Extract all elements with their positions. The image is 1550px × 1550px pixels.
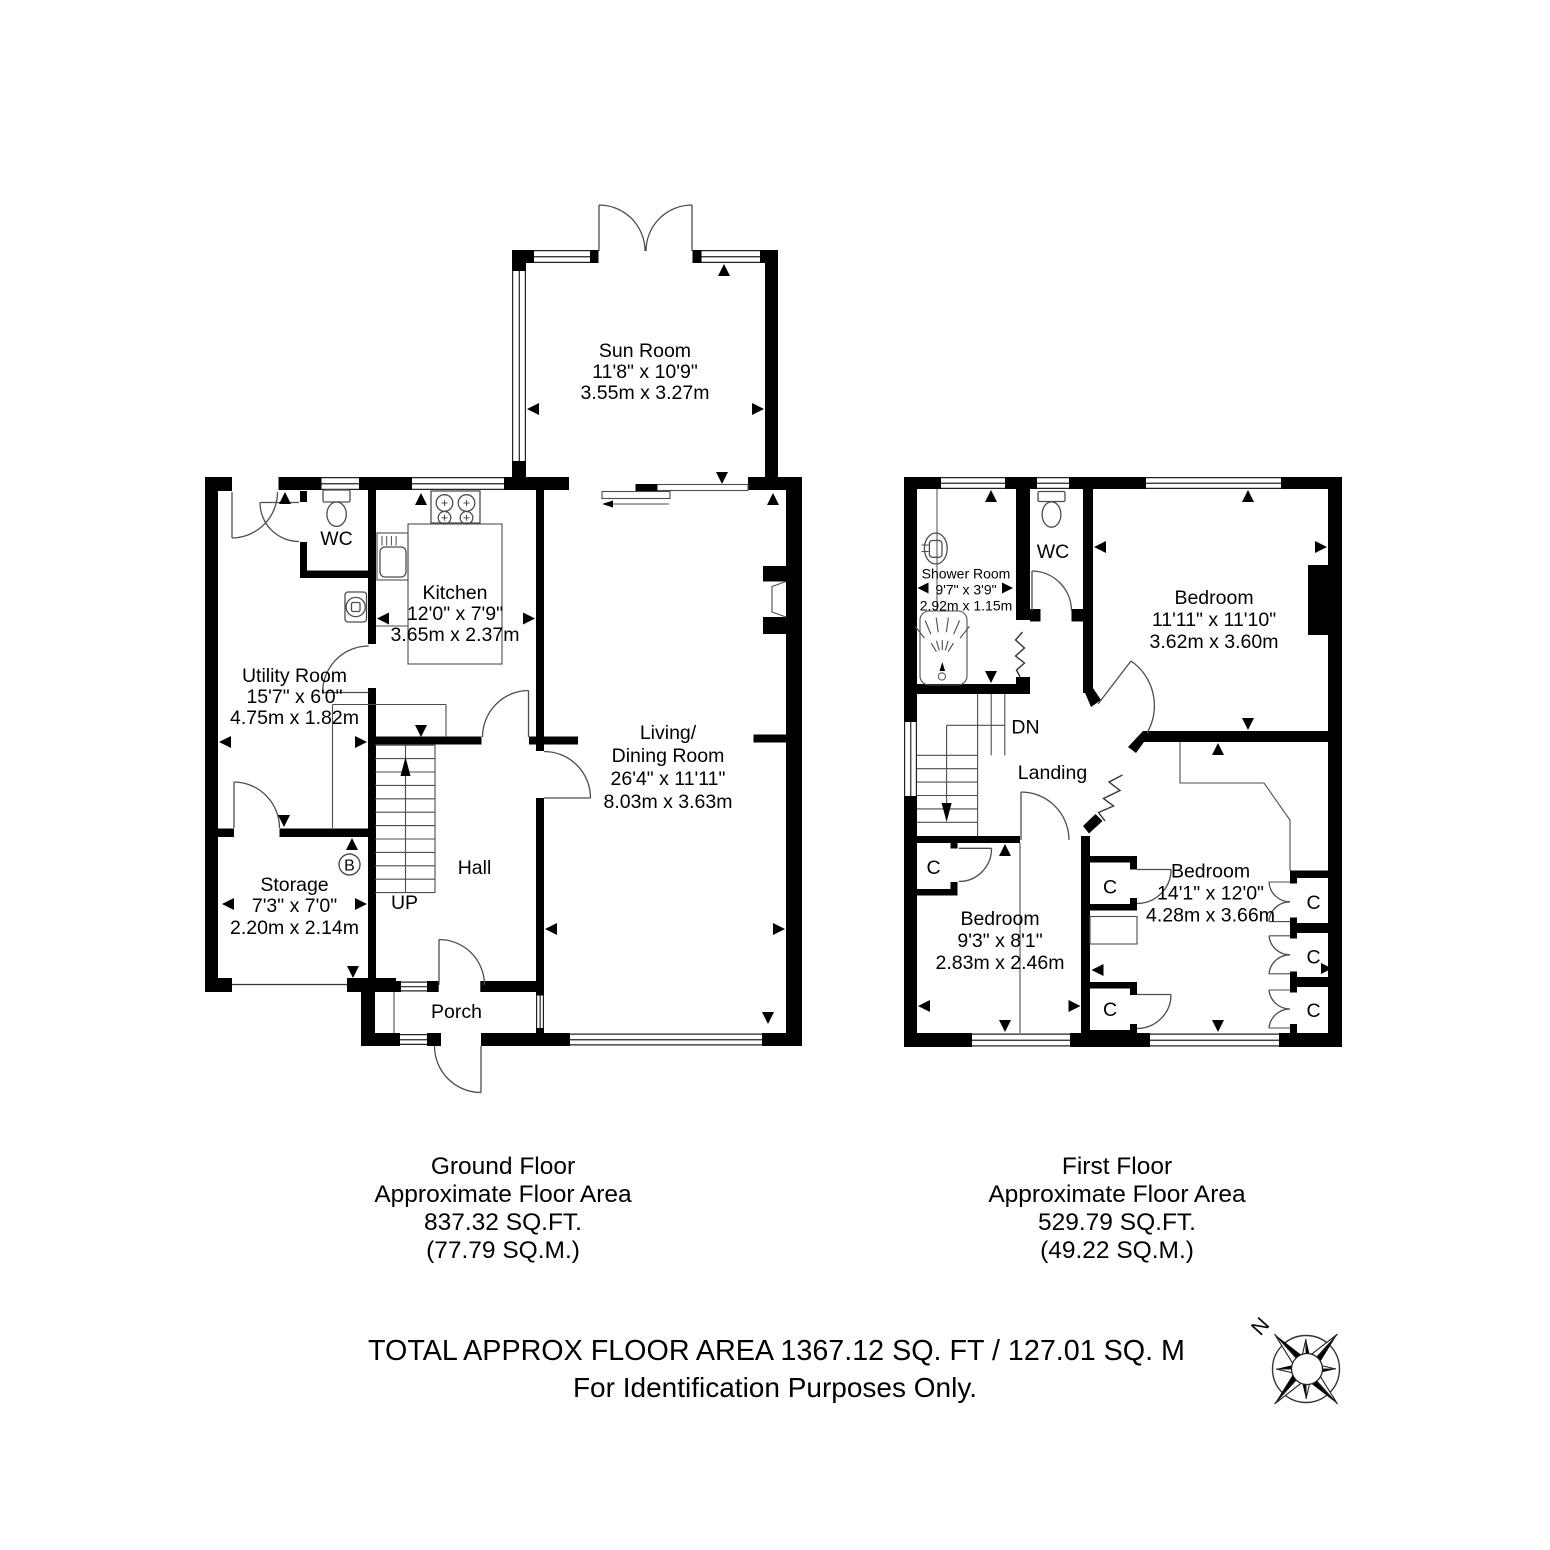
svg-text:TOTAL APPROX FLOOR AREA 1367.1: TOTAL APPROX FLOOR AREA 1367.12 SQ. FT /…: [368, 1335, 1185, 1367]
svg-text:Landing: Landing: [1018, 762, 1087, 784]
svg-text:C: C: [1103, 877, 1117, 899]
svg-text:2.83m x 2.46m: 2.83m x 2.46m: [936, 952, 1065, 974]
svg-text:C: C: [926, 857, 940, 879]
svg-text:Approximate Floor Area: Approximate Floor Area: [374, 1181, 632, 1208]
svg-text:Bedroom: Bedroom: [1174, 587, 1253, 609]
svg-text:2.92m x 1.15m: 2.92m x 1.15m: [920, 598, 1013, 614]
svg-text:4.75m x 1.82m: 4.75m x 1.82m: [230, 707, 359, 729]
svg-text:Bedroom: Bedroom: [1171, 861, 1250, 883]
svg-text:Dining Room: Dining Room: [612, 745, 725, 767]
svg-text:3.65m x 2.37m: 3.65m x 2.37m: [391, 624, 520, 646]
svg-text:26'4" x 11'11": 26'4" x 11'11": [611, 768, 726, 790]
svg-text:Sun Room: Sun Room: [599, 340, 691, 362]
svg-text:C: C: [1103, 999, 1117, 1021]
svg-text:UP: UP: [391, 892, 418, 914]
svg-text:837.32 SQ.FT.: 837.32 SQ.FT.: [424, 1209, 582, 1236]
svg-text:7'3" x 7'0": 7'3" x 7'0": [252, 895, 337, 917]
svg-text:(77.79 SQ.M.): (77.79 SQ.M.): [426, 1237, 580, 1264]
svg-text:11'8" x 10'9": 11'8" x 10'9": [592, 361, 698, 383]
svg-text:For Identification Purposes On: For Identification Purposes Only.: [573, 1372, 977, 1403]
svg-text:Porch: Porch: [431, 1001, 482, 1023]
svg-text:15'7" x 6'0": 15'7" x 6'0": [246, 686, 342, 708]
svg-text:Utility Room: Utility Room: [242, 665, 347, 687]
svg-text:9'7" x 3'9": 9'7" x 3'9": [935, 582, 996, 598]
svg-text:12'0" x 7'9": 12'0" x 7'9": [407, 603, 503, 625]
svg-text:3.62m x 3.60m: 3.62m x 3.60m: [1150, 631, 1279, 653]
svg-text:4.28m x 3.66m: 4.28m x 3.66m: [1146, 905, 1275, 927]
svg-text:14'1" x 12'0": 14'1" x 12'0": [1157, 883, 1264, 905]
svg-text:WC: WC: [1037, 541, 1070, 563]
svg-text:(49.22 SQ.M.): (49.22 SQ.M.): [1040, 1237, 1194, 1264]
svg-text:529.79 SQ.FT.: 529.79 SQ.FT.: [1038, 1209, 1196, 1236]
svg-text:C: C: [1306, 947, 1320, 969]
svg-text:3.55m x 3.27m: 3.55m x 3.27m: [581, 382, 710, 404]
svg-text:Hall: Hall: [458, 857, 492, 879]
svg-text:B: B: [344, 858, 355, 875]
svg-text:Living/: Living/: [640, 722, 697, 744]
svg-text:Kitchen: Kitchen: [422, 582, 487, 604]
svg-text:WC: WC: [320, 528, 353, 550]
svg-text:9'3" x 8'1": 9'3" x 8'1": [957, 930, 1042, 952]
svg-text:First Floor: First Floor: [1062, 1153, 1172, 1180]
svg-text:DN: DN: [1011, 717, 1039, 739]
svg-text:C: C: [1306, 1000, 1320, 1022]
svg-text:Bedroom: Bedroom: [960, 908, 1039, 930]
svg-text:Shower Room: Shower Room: [922, 566, 1011, 582]
svg-text:11'11" x 11'10": 11'11" x 11'10": [1152, 609, 1276, 631]
svg-text:Approximate Floor Area: Approximate Floor Area: [988, 1181, 1246, 1208]
svg-text:Ground Floor: Ground Floor: [431, 1153, 575, 1180]
svg-text:8.03m x 3.63m: 8.03m x 3.63m: [604, 791, 733, 813]
svg-text:C: C: [1306, 892, 1320, 914]
svg-text:Storage: Storage: [260, 874, 328, 896]
svg-text:2.20m x 2.14m: 2.20m x 2.14m: [230, 917, 359, 939]
